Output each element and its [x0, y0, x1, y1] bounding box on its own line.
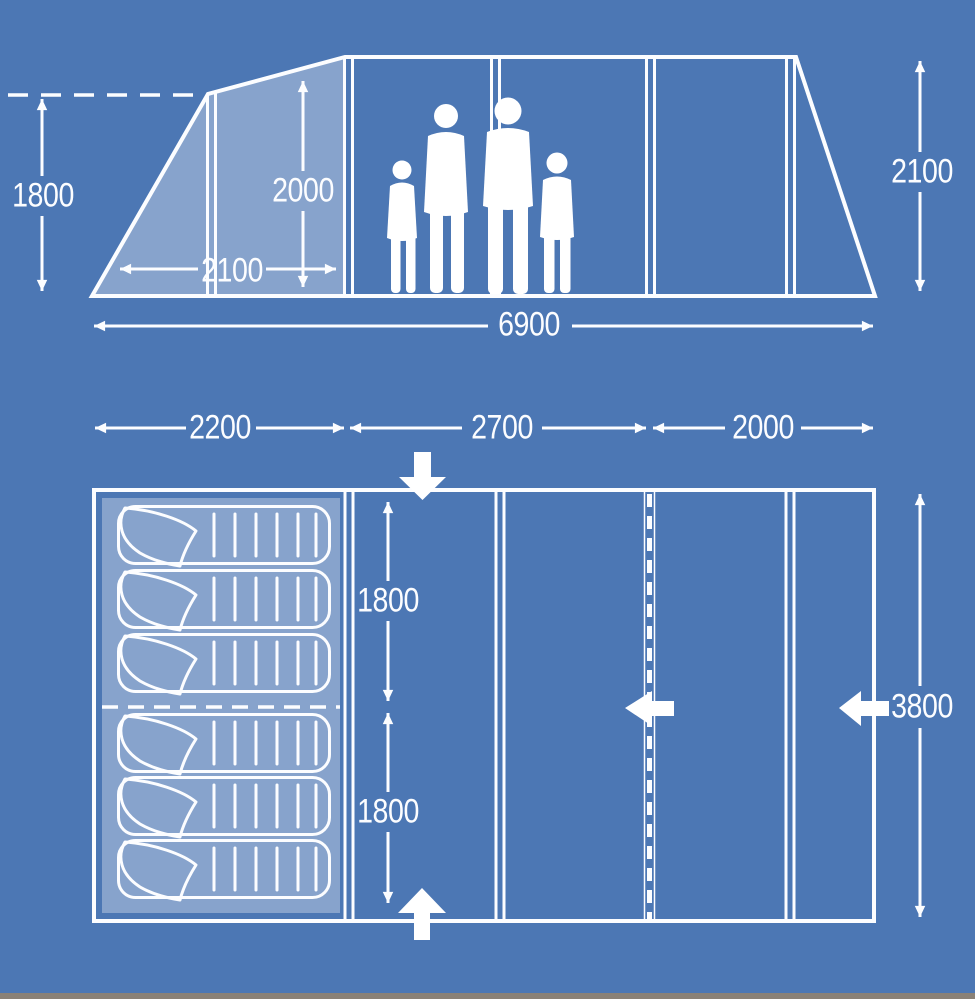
dim-label-interior-height: 2000 [272, 172, 334, 211]
dim-label-overall-length: 6900 [498, 306, 560, 345]
leg [391, 234, 401, 293]
head [434, 104, 458, 128]
entrance-arrow-up-icon [398, 888, 446, 940]
dim-label-living-length: 2700 [471, 409, 533, 448]
entrance-arrows [398, 452, 889, 940]
dim-label-bedroom-depth-rear: 1800 [357, 793, 419, 832]
tent-dimension-diagram: 1800 2000 2100 6900 2100 2200 2700 2000 … [0, 0, 975, 999]
screenshot-bottom-edge-strip [0, 993, 975, 999]
head [495, 98, 522, 125]
family-silhouette [387, 98, 574, 295]
entrance-arrow-down-icon [399, 452, 446, 500]
leg [406, 234, 416, 293]
side-elevation-view [8, 57, 920, 326]
leg [451, 207, 464, 293]
dim-label-max-height: 2100 [891, 153, 953, 192]
diagram-canvas [0, 0, 975, 999]
inner-door-arrow-left-icon [625, 691, 674, 726]
leg [560, 232, 571, 293]
dim-label-porch-depth: 2100 [201, 252, 263, 291]
girl-silhouette [387, 161, 417, 294]
body [387, 183, 417, 242]
leg [430, 207, 443, 293]
leg [488, 201, 503, 294]
dim-label-bedroom-length: 2200 [189, 409, 251, 448]
leg [544, 232, 555, 293]
dim-label-front-length: 2000 [732, 409, 794, 448]
body [483, 128, 533, 210]
body [424, 132, 468, 216]
pole-divider-lines [345, 492, 794, 919]
body [540, 177, 574, 241]
floor-plan-view [94, 428, 920, 940]
dim-label-front-height: 1800 [12, 177, 74, 216]
boy-silhouette [540, 153, 574, 294]
leg [513, 201, 528, 294]
dim-label-bedroom-depth-front: 1800 [357, 582, 419, 621]
head [547, 153, 568, 174]
head [393, 161, 412, 180]
woman-silhouette [424, 104, 468, 293]
dim-label-overall-width: 3800 [891, 688, 953, 727]
side-door-arrow-left-icon [839, 691, 889, 726]
